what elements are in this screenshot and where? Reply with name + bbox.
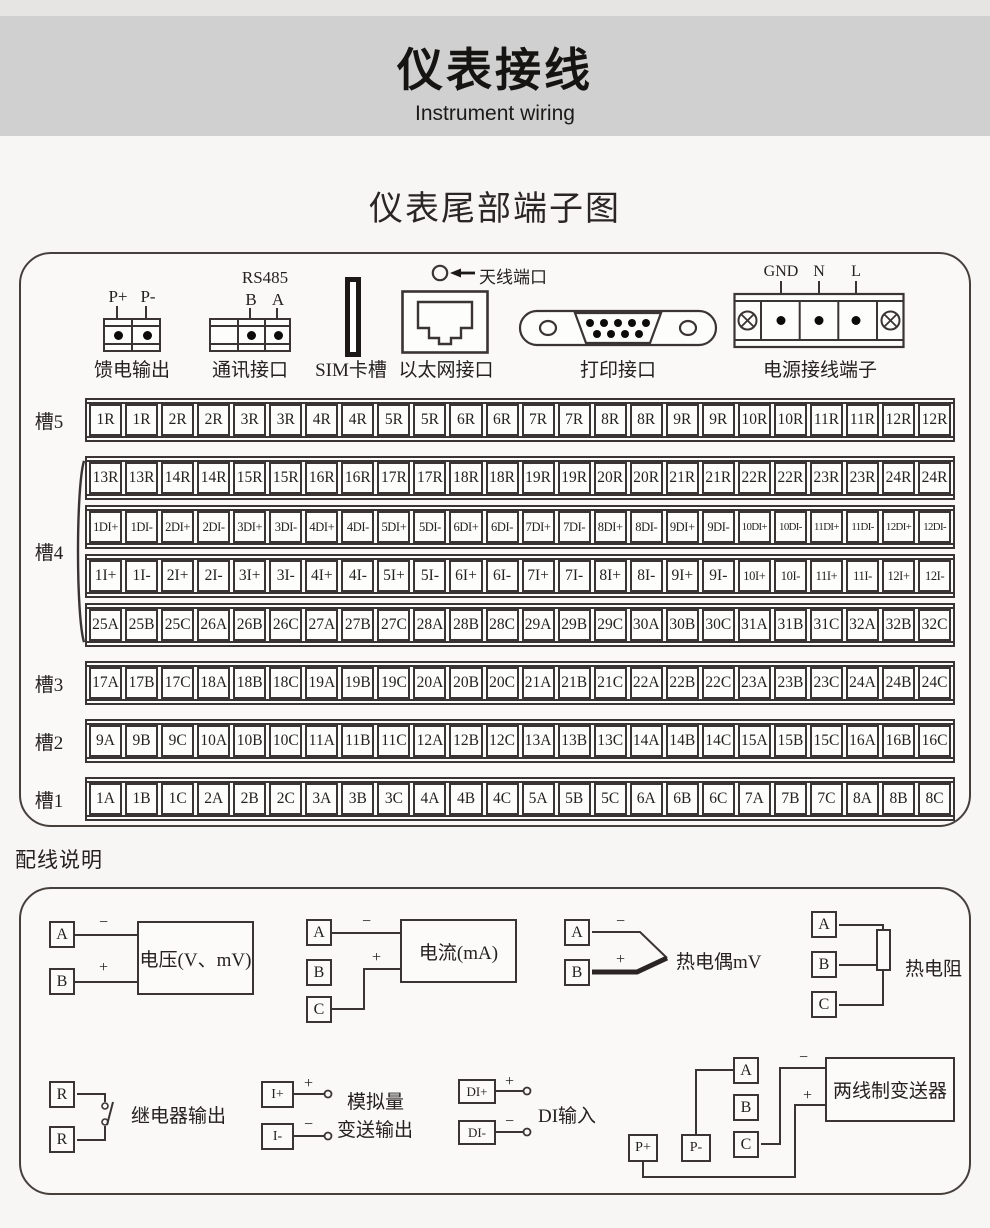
feed-pin-plus-label: P+ <box>108 287 127 307</box>
terminal-cell: 5A <box>522 783 555 815</box>
slot-side: 槽1 <box>21 777 85 821</box>
terminal-r2: R <box>49 1126 75 1153</box>
terminal-cell: 12B <box>449 725 482 757</box>
slot-side: 槽4 <box>21 456 85 647</box>
terminal-a: A <box>811 911 837 938</box>
strip-band <box>87 815 953 819</box>
terminal-cell: 28C <box>486 609 519 641</box>
terminal-strip: 25A25B25C26A26B26C27A27B27C28A28B28C29A2… <box>85 603 955 647</box>
terminal-cell: 12A <box>413 725 446 757</box>
terminal-cell: 18C <box>269 667 302 699</box>
terminal-cell: 16R <box>341 462 374 494</box>
terminal-cell: 11I+ <box>810 560 843 592</box>
slot-side: 槽5 <box>21 398 85 442</box>
terminal-cell: 11A <box>305 725 338 757</box>
printer-port-icon <box>518 304 718 352</box>
terminal-cell: 8A <box>846 783 879 815</box>
terminals-section-title: 仪表尾部端子图 <box>0 181 990 230</box>
terminal-cell: 23B <box>774 667 807 699</box>
feed-pin-minus-label: P- <box>140 287 155 307</box>
connector-row: P+ P- 馈电输出 RS485 B A 通讯接口 SIM卡槽 <box>21 254 969 392</box>
terminal-a: A <box>306 919 332 946</box>
terminal-cell: 4I- <box>341 560 374 592</box>
terminal-cell: 19A <box>305 667 338 699</box>
terminal-b: B <box>306 959 332 986</box>
terminal-cell: 2B <box>233 783 266 815</box>
slot-rows: 1A1B1C2A2B2C3A3B3C4A4B4C5A5B5C6A6B6C7A7B… <box>85 777 955 821</box>
terminal-cell: 22R <box>738 462 771 494</box>
terminal-cell: 19B <box>341 667 374 699</box>
terminal-cell: 9I+ <box>666 560 699 592</box>
slot-rows: 13R13R14R14R15R15R16R16R17R17R18R18R19R1… <box>85 456 955 647</box>
rtd-wiring-diagram: A B C 热电阻 <box>811 911 971 1023</box>
slot-group: 槽29A9B9C10A10B10C11A11B11C12A12B12C13A13… <box>21 719 955 763</box>
terminal-cell: 29A <box>522 609 555 641</box>
terminal-cell: 5B <box>558 783 591 815</box>
terminal-c: C <box>733 1131 759 1158</box>
terminal-cell: 26C <box>269 609 302 641</box>
terminal-cell: 12I+ <box>882 560 915 592</box>
terminal-cell: 24B <box>882 667 915 699</box>
terminal-cell: 23R <box>846 462 879 494</box>
terminal-cell: 7B <box>774 783 807 815</box>
terminal-b: B <box>733 1094 759 1121</box>
terminal-cell: 30A <box>630 609 663 641</box>
terminal-cell: 11R <box>810 404 843 436</box>
terminal-cell: 13A <box>522 725 555 757</box>
terminal-cell: 18B <box>233 667 266 699</box>
terminal-cell: 24R <box>882 462 915 494</box>
terminal-cell: 17B <box>125 667 158 699</box>
terminal-b: B <box>811 951 837 978</box>
terminal-cell: 7I- <box>558 560 591 592</box>
terminal-cell: 19C <box>377 667 410 699</box>
strip-cells: 17A17B17C18A18B18C19A19B19C20A20B20C21A2… <box>87 667 953 699</box>
comm-terminal-block <box>209 318 291 352</box>
slots-area: 槽51R1R2R2R3R3R4R4R5R5R6R6R7R7R8R8R9R9R10… <box>21 398 969 821</box>
terminal-a: A <box>564 919 590 946</box>
terminal-cell: 28B <box>449 609 482 641</box>
power-terminal-icon: GND N L <box>733 258 905 352</box>
plus-sign: + <box>372 949 381 967</box>
terminal-cell: 9A <box>89 725 122 757</box>
terminal-cell: 27A <box>305 609 338 641</box>
minus-sign: − <box>616 913 625 931</box>
terminal-c: C <box>306 996 332 1023</box>
analog-output-label-line1: 模拟量 <box>347 1087 404 1114</box>
page-header: 仪表接线 Instrument wiring <box>0 16 990 136</box>
terminal-cell: 20B <box>449 667 482 699</box>
terminal-cell: 25B <box>125 609 158 641</box>
slot-label: 槽2 <box>35 728 64 755</box>
terminal-cell: 18R <box>486 462 519 494</box>
plus-sign: + <box>803 1087 812 1105</box>
terminal-cell: 6I+ <box>449 560 482 592</box>
terminal-cell: 31C <box>810 609 843 641</box>
terminal-cell: 23A <box>738 667 771 699</box>
terminal-cell: 2R <box>197 404 230 436</box>
block-line <box>237 320 239 350</box>
terminal-cell: 2R <box>161 404 194 436</box>
terminal-cell: 26B <box>233 609 266 641</box>
ethernet-port-icon <box>401 290 489 354</box>
minus-sign: − <box>505 1113 514 1131</box>
terminal-cell: 32C <box>918 609 951 641</box>
terminal-cell: 21C <box>594 667 627 699</box>
terminal-cell: 10A <box>197 725 230 757</box>
strip-cells: 1DI+1DI-2DI+2DI-3DI+3DI-4DI+4DI-5DI+5DI-… <box>87 511 953 543</box>
terminal-cell: 4A <box>413 783 446 815</box>
terminal-cell: 12C <box>486 725 519 757</box>
plus-sign: + <box>99 959 108 977</box>
terminal-p-plus: P+ <box>628 1134 658 1162</box>
terminal-cell: 1C <box>161 783 194 815</box>
terminal-cell: 9I- <box>702 560 735 592</box>
slot-label: 槽4 <box>35 538 64 565</box>
terminal-cell: 1B <box>125 783 158 815</box>
relay-label: 继电器输出 <box>131 1101 226 1128</box>
slot-group: 槽317A17B17C18A18B18C19A19B19C20A20B20C21… <box>21 661 955 705</box>
terminal-cell: 2DI+ <box>161 511 194 543</box>
strip-band <box>87 494 953 498</box>
terminal-cell: 18A <box>197 667 230 699</box>
terminal-p-minus: P- <box>681 1134 711 1162</box>
terminal-cell: 2A <box>197 783 230 815</box>
terminal-cell: 16B <box>882 725 915 757</box>
terminal-cell: 14R <box>161 462 194 494</box>
terminal-cell: 6DI+ <box>449 511 482 543</box>
terminal-strip: 1I+1I-2I+2I-3I+3I-4I+4I-5I+5I-6I+6I-7I+7… <box>85 554 955 598</box>
rtd-label: 热电阻 <box>905 954 962 981</box>
terminal-cell: 12R <box>918 404 951 436</box>
terminal-c: C <box>811 991 837 1018</box>
terminal-cell: 24C <box>918 667 951 699</box>
sim-caption: SIM卡槽 <box>315 355 387 382</box>
terminal-cell: 27C <box>377 609 410 641</box>
terminal-cell: 6A <box>630 783 663 815</box>
terminal-strip: 9A9B9C10A10B10C11A11B11C12A12B12C13A13B1… <box>85 719 955 763</box>
terminal-cell: 4B <box>449 783 482 815</box>
terminal-cell: 4I+ <box>305 560 338 592</box>
terminal-cell: 11DI+ <box>810 511 843 543</box>
minus-sign: − <box>799 1049 808 1067</box>
terminal-cell: 21R <box>666 462 699 494</box>
terminal-panel: P+ P- 馈电输出 RS485 B A 通讯接口 SIM卡槽 <box>19 252 971 827</box>
strip-band <box>87 757 953 761</box>
terminal-cell: 15R <box>233 462 266 494</box>
strip-cells: 25A25B25C26A26B26C27A27B27C28A28B28C29A2… <box>87 609 953 641</box>
terminal-cell: 22B <box>666 667 699 699</box>
terminal-cell: 6R <box>486 404 519 436</box>
terminal-cell: 7R <box>522 404 555 436</box>
printer-caption: 打印接口 <box>580 355 656 382</box>
slot-brace <box>73 458 85 645</box>
terminal-cell: 25A <box>89 609 122 641</box>
voltage-wiring-diagram: A B − + 电压(V、mV) <box>49 919 254 1001</box>
terminal-cell: 16A <box>846 725 879 757</box>
terminal-cell: 8I+ <box>594 560 627 592</box>
terminal-strip: 1DI+1DI-2DI+2DI-3DI+3DI-4DI+4DI-5DI+5DI-… <box>85 505 955 549</box>
terminal-cell: 22R <box>774 462 807 494</box>
terminal-cell: 6B <box>666 783 699 815</box>
terminal-cell: 16C <box>918 725 951 757</box>
terminal-cell: 7A <box>738 783 771 815</box>
minus-sign: − <box>304 1116 313 1134</box>
strip-band <box>87 592 953 596</box>
terminal-r1: R <box>49 1081 75 1108</box>
terminal-cell: 1R <box>125 404 158 436</box>
terminal-cell: 2I+ <box>161 560 194 592</box>
slot-side: 槽3 <box>21 661 85 705</box>
terminal-cell: 1DI- <box>125 511 158 543</box>
strip-band <box>87 699 953 703</box>
strip-cells: 1A1B1C2A2B2C3A3B3C4A4B4C5A5B5C6A6B6C7A7B… <box>87 783 953 815</box>
terminal-di-plus: DI+ <box>458 1079 496 1104</box>
terminal-cell: 1I+ <box>89 560 122 592</box>
terminal-cell: 3DI- <box>269 511 302 543</box>
terminal-cell: 18R <box>449 462 482 494</box>
terminal-cell: 23C <box>810 667 843 699</box>
terminal-strip: 1A1B1C2A2B2C3A3B3C4A4B4C5A5B5C6A6B6C7A7B… <box>85 777 955 821</box>
terminal-cell: 9DI+ <box>666 511 699 543</box>
terminal-cell: 8DI- <box>630 511 663 543</box>
minus-sign: − <box>99 914 108 932</box>
plus-sign: + <box>304 1075 313 1093</box>
terminal-cell: 30B <box>666 609 699 641</box>
terminal-cell: 2I- <box>197 560 230 592</box>
antenna-icon <box>431 264 475 282</box>
terminal-cell: 15R <box>269 462 302 494</box>
power-pin-n-label: N <box>813 263 825 280</box>
terminal-cell: 6I- <box>486 560 519 592</box>
terminal-cell: 17C <box>161 667 194 699</box>
terminal-cell: 24R <box>918 462 951 494</box>
block-line <box>211 325 289 327</box>
transmitter-wiring-diagram: P+ P- A B C − + 两线制变送器 <box>621 1041 973 1191</box>
terminal-cell: 32B <box>882 609 915 641</box>
terminal-cell: 10B <box>233 725 266 757</box>
analog-output-label-line2: 变送输出 <box>337 1115 413 1142</box>
block-line <box>211 343 289 345</box>
terminal-cell: 15B <box>774 725 807 757</box>
terminal-cell: 8DI+ <box>594 511 627 543</box>
terminal-cell: 3I- <box>269 560 302 592</box>
plus-sign: + <box>505 1073 514 1091</box>
terminal-cell: 11C <box>377 725 410 757</box>
terminal-a: A <box>49 921 75 948</box>
terminal-cell: 10I+ <box>738 560 771 592</box>
wiring-panel: A B − + 电压(V、mV) A B C − + 电流(mA) A B − … <box>19 887 971 1195</box>
terminal-cell: 9C <box>161 725 194 757</box>
terminal-cell: 20R <box>630 462 663 494</box>
strip-cells: 1I+1I-2I+2I-3I+3I-4I+4I-5I+5I-6I+6I-7I+7… <box>87 560 953 592</box>
terminal-cell: 19R <box>522 462 555 494</box>
terminal-cell: 29C <box>594 609 627 641</box>
terminal-strip: 13R13R14R14R15R15R16R16R17R17R18R18R19R1… <box>85 456 955 500</box>
terminal-cell: 13R <box>89 462 122 494</box>
terminal-cell: 13C <box>594 725 627 757</box>
terminal-cell: 10I- <box>774 560 807 592</box>
terminal-cell: 31B <box>774 609 807 641</box>
terminal-cell: 14R <box>197 462 230 494</box>
feed-terminal-block <box>103 318 161 352</box>
terminal-cell: 17A <box>89 667 122 699</box>
terminal-cell: 3C <box>377 783 410 815</box>
terminal-i-plus: I+ <box>261 1081 294 1108</box>
slot-group: 槽413R13R14R14R15R15R16R16R17R17R18R18R19… <box>21 456 955 647</box>
terminal-cell: 12DI+ <box>882 511 915 543</box>
terminal-cell: 14C <box>702 725 735 757</box>
terminal-cell: 10R <box>738 404 771 436</box>
terminal-cell: 5R <box>413 404 446 436</box>
power-pin-gnd-label: GND <box>764 263 799 280</box>
terminal-cell: 23R <box>810 462 843 494</box>
thermocouple-label: 热电偶mV <box>676 947 762 974</box>
strip-cells: 9A9B9C10A10B10C11A11B11C12A12B12C13A13B1… <box>87 725 953 757</box>
terminal-cell: 8R <box>594 404 627 436</box>
strip-cells: 13R13R14R14R15R15R16R16R17R17R18R18R19R1… <box>87 462 953 494</box>
terminal-cell: 1I- <box>125 560 158 592</box>
screw-dot <box>114 331 123 340</box>
terminal-cell: 5DI+ <box>377 511 410 543</box>
terminal-cell: 9R <box>702 404 735 436</box>
terminal-cell: 12DI- <box>918 511 951 543</box>
block-line <box>264 320 266 350</box>
terminal-cell: 20A <box>413 667 446 699</box>
terminal-cell: 12I- <box>918 560 951 592</box>
current-label-box: 电流(mA) <box>400 919 517 983</box>
feed-caption: 馈电输出 <box>94 355 170 382</box>
terminal-cell: 14B <box>666 725 699 757</box>
terminal-cell: 19R <box>558 462 591 494</box>
terminal-cell: 8I- <box>630 560 663 592</box>
minus-sign: − <box>362 913 371 931</box>
terminal-cell: 22C <box>702 667 735 699</box>
relay-wiring-diagram: R R 继电器输出 <box>49 1081 264 1159</box>
terminal-cell: 7DI- <box>558 511 591 543</box>
terminal-cell: 8R <box>630 404 663 436</box>
terminal-cell: 1DI+ <box>89 511 122 543</box>
screw-dot <box>143 331 152 340</box>
top-strip <box>0 0 990 16</box>
di-input-label: DI输入 <box>538 1101 596 1128</box>
terminal-cell: 22A <box>630 667 663 699</box>
terminal-cell: 15C <box>810 725 843 757</box>
terminal-cell: 4C <box>486 783 519 815</box>
terminal-cell: 31A <box>738 609 771 641</box>
screw-dot <box>274 331 283 340</box>
terminal-di-minus: DI- <box>458 1120 496 1145</box>
terminal-cell: 13R <box>125 462 158 494</box>
terminal-b: B <box>49 968 75 995</box>
terminal-cell: 12R <box>882 404 915 436</box>
antenna-label: 天线端口 <box>479 263 547 288</box>
terminal-cell: 7R <box>558 404 591 436</box>
slot-label: 槽1 <box>35 786 64 813</box>
terminal-cell: 2DI- <box>197 511 230 543</box>
terminal-cell: 15A <box>738 725 771 757</box>
terminal-cell: 11R <box>846 404 879 436</box>
terminal-cell: 20C <box>486 667 519 699</box>
slot-rows: 1R1R2R2R3R3R4R4R5R5R6R6R7R7R8R8R9R9R10R1… <box>85 398 955 442</box>
terminal-strip: 1R1R2R2R3R3R4R4R5R5R6R6R7R7R8R8R9R9R10R1… <box>85 398 955 442</box>
slot-group: 槽11A1B1C2A2B2C3A3B3C4A4B4C5A5B5C6A6B6C7A… <box>21 777 955 821</box>
terminal-cell: 6C <box>702 783 735 815</box>
terminal-cell: 5R <box>377 404 410 436</box>
comm-pin-b-label: B <box>245 290 256 310</box>
terminal-cell: 24A <box>846 667 879 699</box>
terminal-cell: 6R <box>449 404 482 436</box>
transmitter-label-box: 两线制变送器 <box>825 1057 955 1122</box>
slot-label: 槽5 <box>35 407 64 434</box>
terminal-cell: 1A <box>89 783 122 815</box>
terminal-cell: 10DI- <box>774 511 807 543</box>
terminal-cell: 9DI- <box>702 511 735 543</box>
slot-group: 槽51R1R2R2R3R3R4R4R5R5R6R6R7R7R8R8R9R9R10… <box>21 398 955 442</box>
terminal-cell: 8B <box>882 783 915 815</box>
terminal-cell: 5C <box>594 783 627 815</box>
terminal-cell: 21R <box>702 462 735 494</box>
terminal-cell: 5DI- <box>413 511 446 543</box>
wiring-section-title: 配线说明 <box>15 844 990 874</box>
rs485-label: RS485 <box>242 268 288 288</box>
power-caption: 电源接线端子 <box>763 355 877 382</box>
terminal-cell: 7C <box>810 783 843 815</box>
slot-rows: 9A9B9C10A10B10C11A11B11C12A12B12C13A13B1… <box>85 719 955 763</box>
terminal-cell: 21A <box>522 667 555 699</box>
terminal-cell: 13B <box>558 725 591 757</box>
plus-sign: + <box>616 951 625 969</box>
terminal-cell: 3A <box>305 783 338 815</box>
terminal-cell: 28A <box>413 609 446 641</box>
comm-pin-a-label: A <box>272 290 284 310</box>
terminal-cell: 32A <box>846 609 879 641</box>
terminal-cell: 5I+ <box>377 560 410 592</box>
terminal-a: A <box>733 1057 759 1084</box>
terminal-cell: 5I- <box>413 560 446 592</box>
strip-band <box>87 543 953 547</box>
terminal-cell: 4R <box>341 404 374 436</box>
slot-rows: 17A17B17C18A18B18C19A19B19C20A20B20C21A2… <box>85 661 955 705</box>
thermocouple-wiring-diagram: A B − + 热电偶mV <box>564 919 799 999</box>
page-subtitle: Instrument wiring <box>0 102 990 126</box>
terminal-i-minus: I- <box>261 1123 294 1150</box>
terminal-cell: 29B <box>558 609 591 641</box>
terminal-cell: 3R <box>233 404 266 436</box>
terminal-cell: 10R <box>774 404 807 436</box>
terminal-cell: 27B <box>341 609 374 641</box>
terminal-cell: 6DI- <box>486 511 519 543</box>
terminal-cell: 17R <box>413 462 446 494</box>
terminal-cell: 30C <box>702 609 735 641</box>
di-input-wiring-diagram: DI+ DI- + − DI输入 <box>458 1079 633 1154</box>
terminal-cell: 9R <box>666 404 699 436</box>
terminal-cell: 4DI- <box>341 511 374 543</box>
comm-caption: 通讯接口 <box>212 355 288 382</box>
sim-slot-icon <box>345 277 361 357</box>
terminal-cell: 11DI- <box>846 511 879 543</box>
terminal-cell: 2C <box>269 783 302 815</box>
terminal-cell: 26A <box>197 609 230 641</box>
terminal-strip: 17A17B17C18A18B18C19A19B19C20A20B20C21A2… <box>85 661 955 705</box>
terminal-cell: 4R <box>305 404 338 436</box>
terminal-cell: 10DI+ <box>738 511 771 543</box>
voltage-label-box: 电压(V、mV) <box>137 921 254 995</box>
terminal-cell: 3I+ <box>233 560 266 592</box>
terminal-cell: 3DI+ <box>233 511 266 543</box>
terminal-cell: 3R <box>269 404 302 436</box>
screw-dot <box>247 331 256 340</box>
